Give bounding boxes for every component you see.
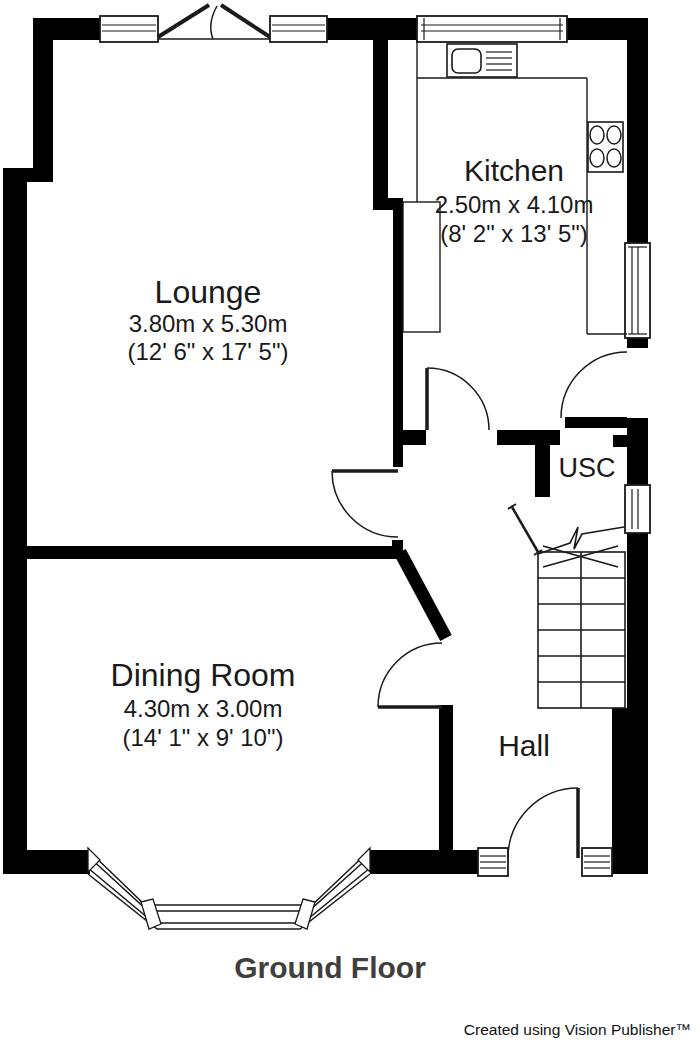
bay-post — [358, 848, 370, 872]
wall-segment — [613, 435, 627, 447]
dining-hall-door — [378, 643, 442, 707]
wall-segment — [535, 445, 550, 497]
wall-segment — [33, 18, 53, 174]
kitchen-worktop — [403, 40, 627, 334]
stairs — [538, 527, 625, 708]
lounge-imperial-dims: (12' 6" x 17' 5") — [128, 338, 289, 365]
floor-plan-drawing: Kitchen 2.50m x 4.10m (8' 2" x 13' 5") L… — [0, 0, 700, 1044]
wall-segment — [327, 18, 417, 40]
wall-segment — [627, 533, 648, 708]
wall-segment — [567, 18, 648, 40]
dining-room-imperial-dims: (14' 1" x 9' 10") — [123, 724, 284, 751]
wall-segment — [370, 850, 478, 874]
wall-segment — [627, 40, 648, 243]
bay-post — [88, 848, 100, 872]
wall-segment — [27, 546, 403, 559]
wall-segment — [439, 705, 453, 852]
wall-segment — [627, 418, 648, 485]
wall-segment — [612, 850, 648, 874]
stairs-direction-break — [538, 527, 624, 554]
wall-segment — [373, 18, 388, 210]
wall-segment — [3, 180, 27, 852]
kitchen-back-door — [561, 352, 627, 418]
front-door-sidelight-right — [582, 848, 612, 876]
lounge-french-doors — [158, 5, 270, 39]
usc-label: USC — [558, 453, 615, 483]
kitchen-fixtures — [403, 40, 627, 334]
walls — [3, 18, 648, 874]
lounge-window-left — [100, 16, 158, 42]
lounge-window-right — [270, 16, 327, 42]
bay-window — [88, 848, 370, 929]
hall-label: Hall — [498, 729, 550, 762]
dining-room-label: Dining Room — [111, 657, 296, 693]
dining-room-metric-dims: 4.30m x 3.00m — [124, 695, 283, 722]
bay-post — [141, 899, 161, 929]
kitchen-imperial-dims: (8' 2" x 13' 5") — [440, 220, 588, 247]
wall-segment — [565, 417, 627, 428]
lounge-metric-dims: 3.80m x 5.30m — [129, 310, 288, 337]
kitchen-sink — [447, 44, 517, 77]
kitchen-window — [417, 16, 567, 42]
wall-segment — [393, 203, 403, 467]
floor-plan-page: Kitchen 2.50m x 4.10m (8' 2" x 13' 5") L… — [0, 0, 700, 1044]
kitchen-hall-door — [427, 368, 489, 430]
wall-segment — [393, 430, 426, 445]
lounge-hall-door — [332, 471, 398, 537]
usc-window — [625, 485, 650, 533]
wall-segment — [3, 168, 53, 182]
bay-post — [295, 899, 315, 929]
kitchen-label: Kitchen — [464, 154, 564, 187]
kitchen-metric-dims: 2.50m x 4.10m — [435, 191, 594, 218]
front-door-sidelight-left — [478, 848, 508, 876]
wall-segment — [3, 850, 90, 874]
wall-segment — [497, 430, 560, 445]
floor-title: Ground Floor — [234, 951, 426, 984]
wall-segment — [627, 338, 648, 348]
credit-text: Created using Vision Publisher™ — [464, 1021, 691, 1038]
kitchen-side-window — [625, 243, 650, 338]
wall-segment-diagonal — [400, 552, 446, 638]
usc-door — [508, 504, 542, 555]
kitchen-hob — [588, 122, 623, 172]
wall-segment — [612, 708, 648, 852]
front-door — [508, 788, 578, 858]
lounge-label: Lounge — [155, 274, 262, 310]
